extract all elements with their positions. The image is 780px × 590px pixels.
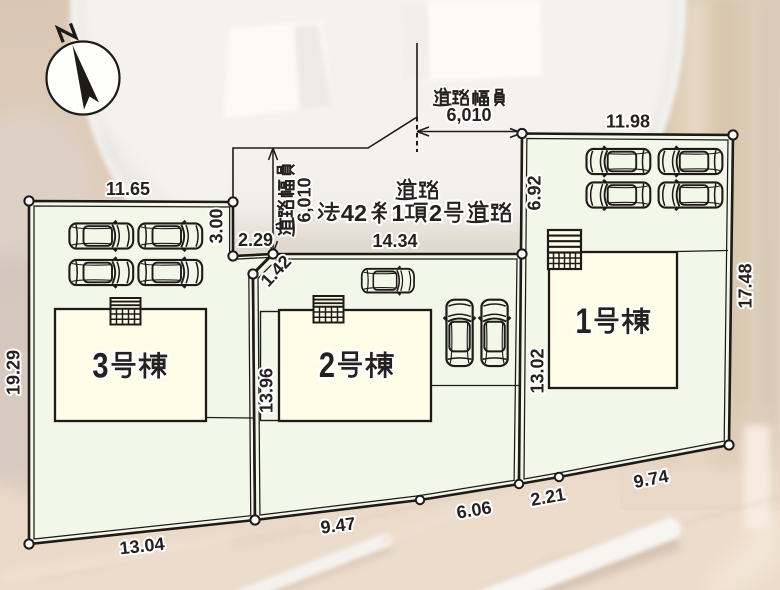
svg-text:19.29: 19.29 bbox=[4, 350, 24, 395]
svg-text:2: 2 bbox=[319, 345, 335, 384]
svg-text:2.29: 2.29 bbox=[238, 230, 273, 250]
svg-text:42: 42 bbox=[341, 200, 367, 226]
svg-text:6,010: 6,010 bbox=[295, 177, 315, 222]
svg-text:9.47: 9.47 bbox=[319, 513, 356, 537]
svg-text:6,010: 6,010 bbox=[446, 105, 491, 125]
svg-text:3: 3 bbox=[92, 346, 108, 385]
svg-text:1: 1 bbox=[575, 301, 591, 340]
svg-text:2: 2 bbox=[429, 200, 442, 226]
svg-text:14.34: 14.34 bbox=[372, 231, 417, 251]
svg-text:13.96: 13.96 bbox=[257, 368, 277, 413]
svg-text:17.48: 17.48 bbox=[736, 263, 756, 308]
svg-text:11.65: 11.65 bbox=[106, 179, 150, 199]
svg-text:11.98: 11.98 bbox=[606, 112, 650, 132]
svg-text:3.00: 3.00 bbox=[206, 208, 226, 243]
svg-text:6.92: 6.92 bbox=[525, 175, 545, 210]
svg-text:1: 1 bbox=[391, 200, 404, 226]
svg-text:13.02: 13.02 bbox=[528, 348, 548, 393]
